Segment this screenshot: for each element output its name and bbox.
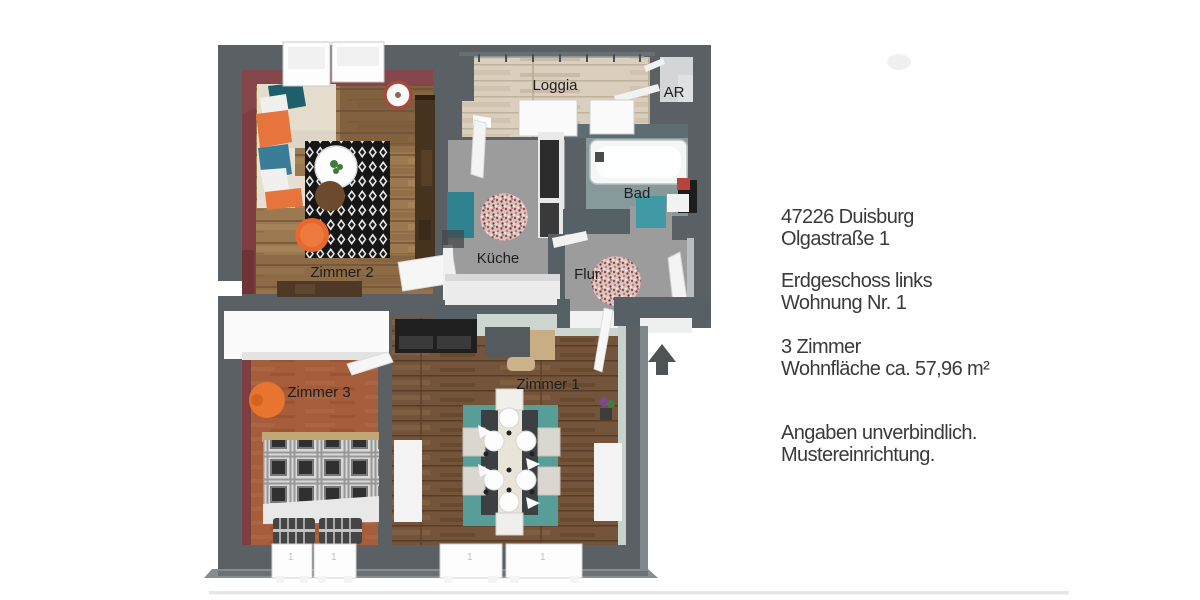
svg-text:Bad: Bad [624,185,651,202]
svg-text:Zimmer 1: Zimmer 1 [516,376,579,393]
svg-text:1: 1 [331,552,337,563]
svg-text:Zimmer 3: Zimmer 3 [287,384,350,401]
svg-text:1: 1 [288,552,294,563]
svg-text:Zimmer 2: Zimmer 2 [310,264,373,281]
svg-text:Flur: Flur [574,266,600,283]
svg-text:Küche: Küche [477,250,520,267]
svg-text:1: 1 [467,552,473,563]
svg-text:1: 1 [540,552,546,563]
svg-text:AR: AR [664,84,685,101]
svg-text:Loggia: Loggia [532,77,578,94]
